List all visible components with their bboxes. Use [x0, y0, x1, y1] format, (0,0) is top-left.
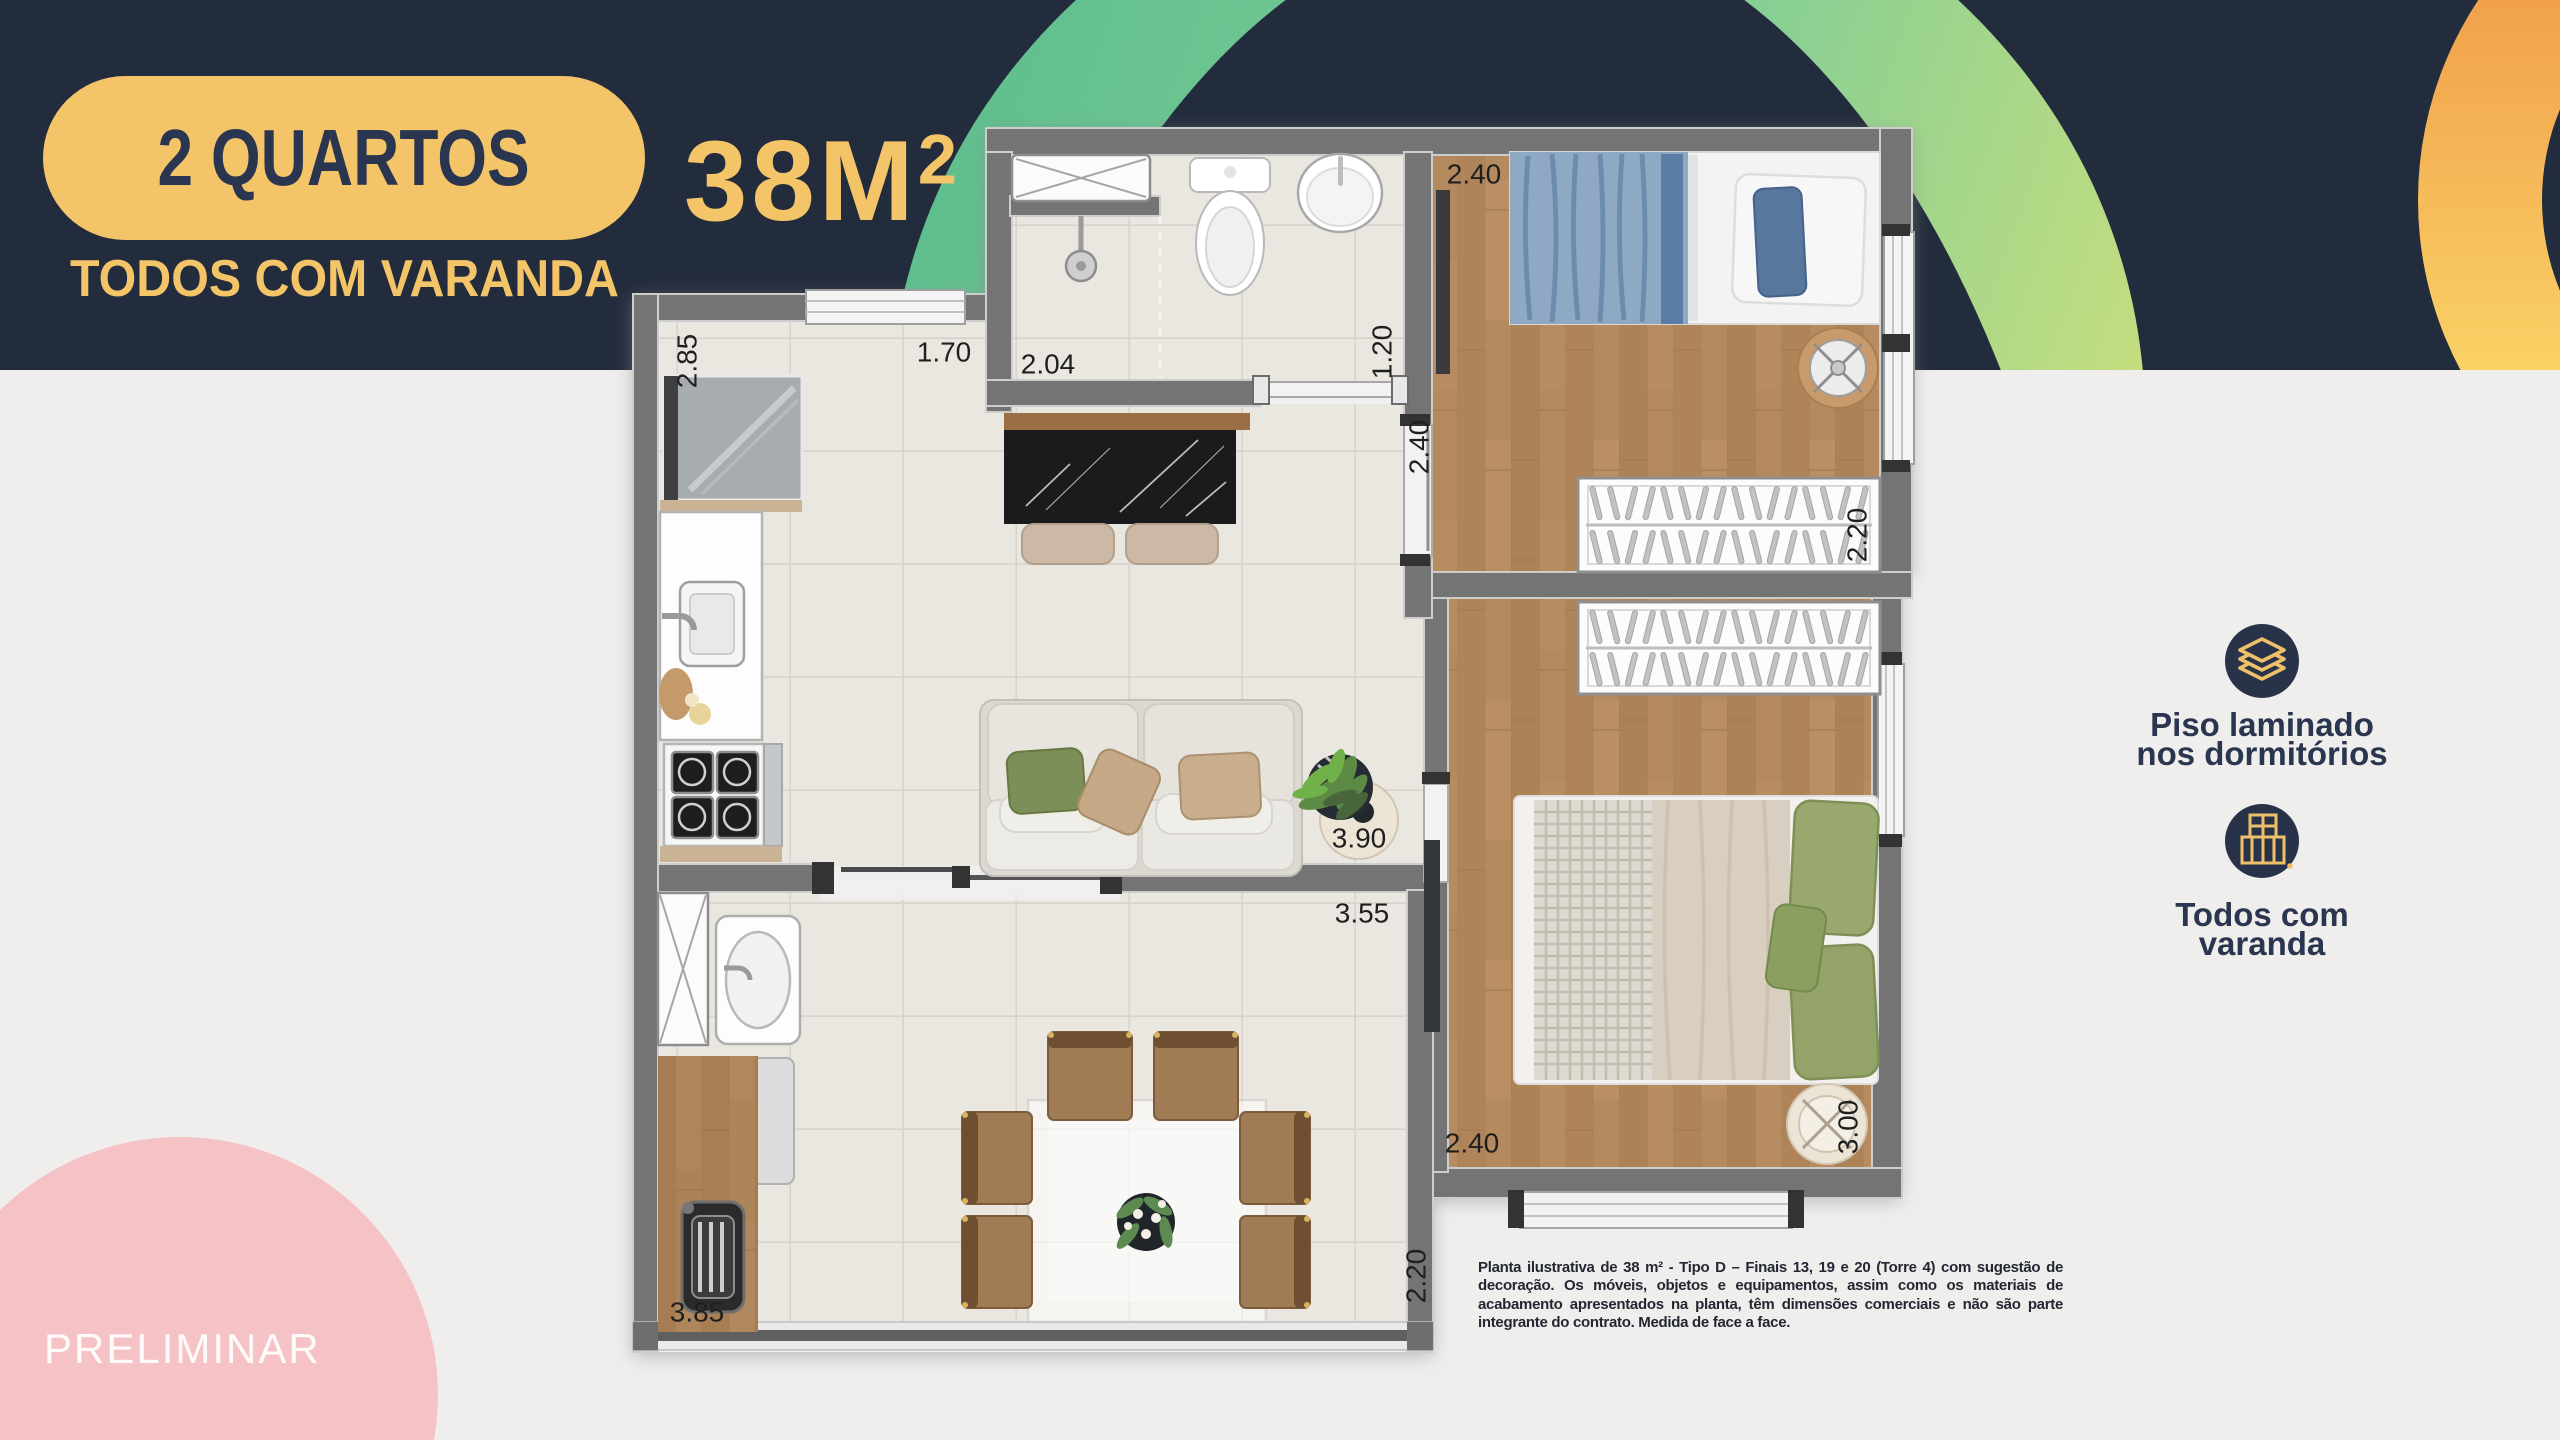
- svg-text:2.20: 2.20: [1400, 1249, 1431, 1304]
- svg-text:3.00: 3.00: [1832, 1100, 1863, 1155]
- svg-text:2.85: 2.85: [671, 334, 702, 389]
- svg-text:2.20: 2.20: [1841, 508, 1872, 563]
- svg-text:3.90: 3.90: [1332, 822, 1387, 853]
- svg-text:3.55: 3.55: [1335, 897, 1390, 928]
- svg-text:2.40: 2.40: [1447, 158, 1502, 189]
- svg-text:1.70: 1.70: [917, 336, 972, 367]
- svg-text:3.85: 3.85: [670, 1296, 725, 1327]
- svg-text:2.04: 2.04: [1021, 348, 1076, 379]
- svg-text:1.20: 1.20: [1366, 325, 1397, 380]
- svg-text:2.40: 2.40: [1445, 1127, 1500, 1158]
- svg-text:2.40: 2.40: [1403, 420, 1434, 475]
